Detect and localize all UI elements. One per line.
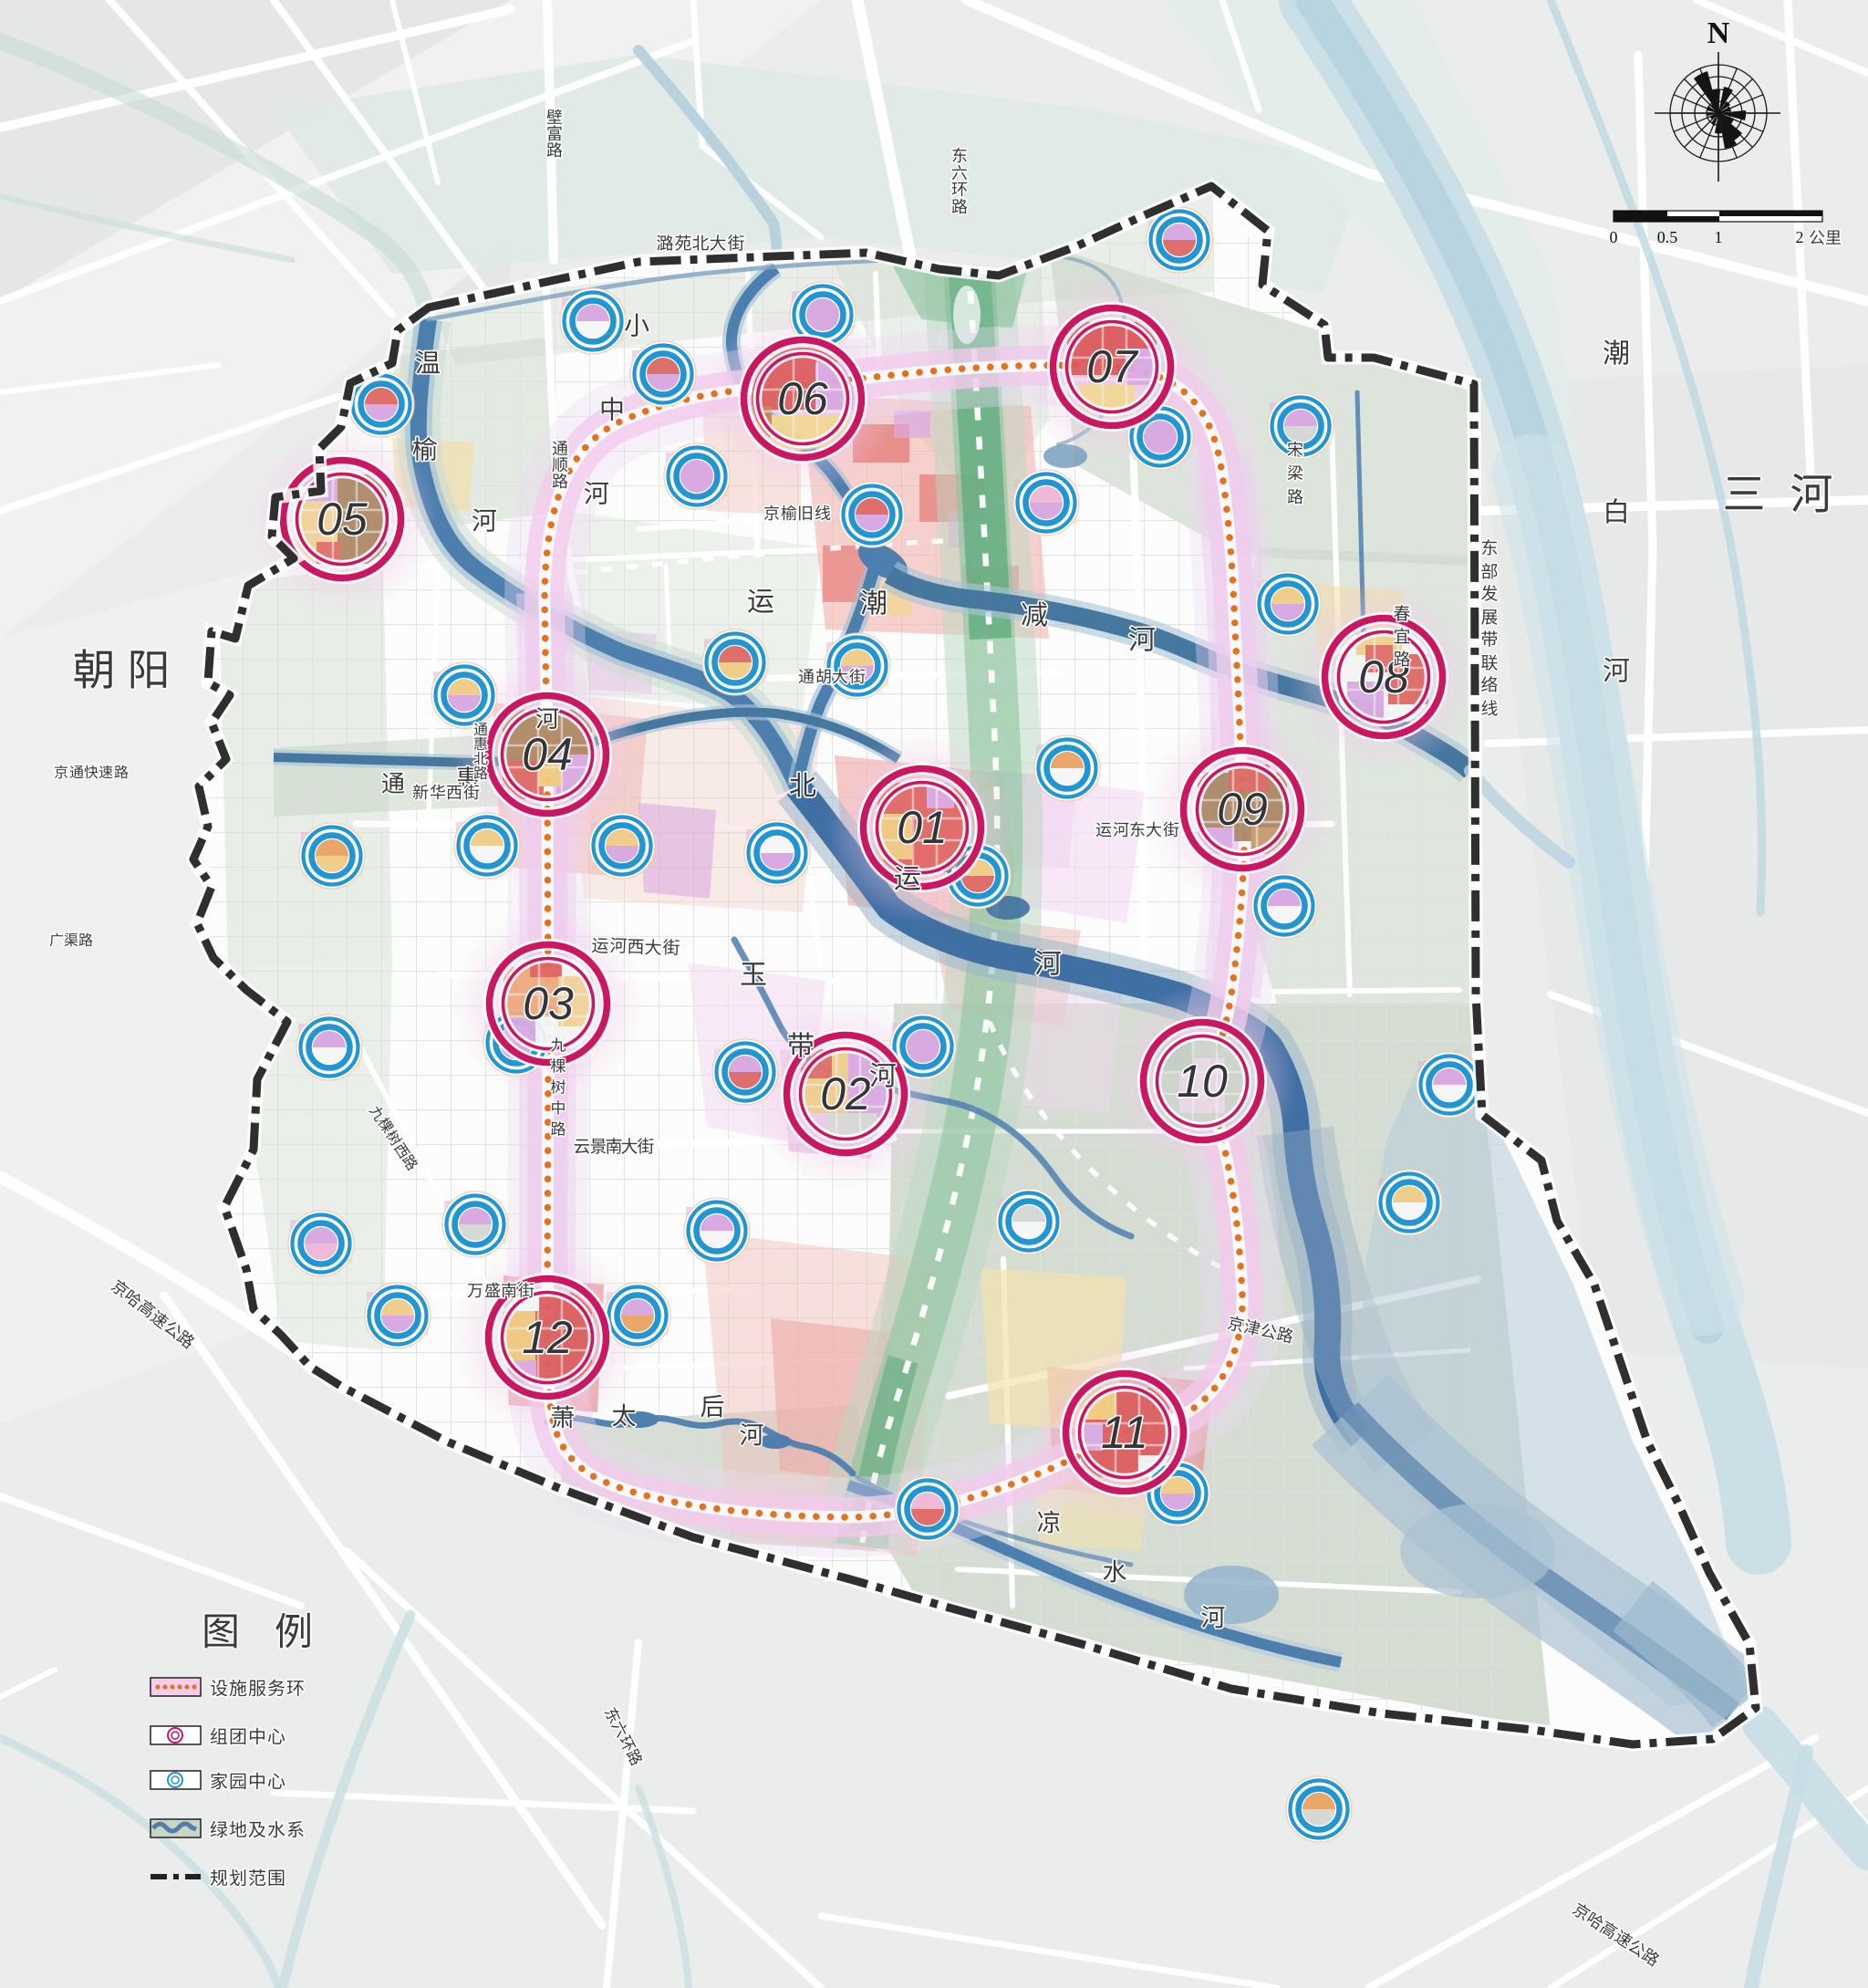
- svg-text:1: 1: [1715, 228, 1723, 246]
- svg-text:04: 04: [522, 729, 573, 780]
- svg-text:12: 12: [522, 1312, 573, 1363]
- svg-text:0.5: 0.5: [1657, 228, 1678, 246]
- svg-text:01: 01: [897, 802, 948, 853]
- svg-text:07: 07: [1086, 341, 1139, 392]
- svg-text:N: N: [1707, 16, 1730, 50]
- svg-text:11: 11: [1101, 1407, 1148, 1458]
- svg-text:05: 05: [317, 494, 368, 545]
- svg-text:0: 0: [1610, 228, 1618, 246]
- svg-text:02: 02: [820, 1068, 871, 1119]
- svg-text:03: 03: [523, 978, 574, 1029]
- svg-text:10: 10: [1177, 1056, 1228, 1107]
- svg-text:06: 06: [777, 373, 828, 424]
- svg-text:09: 09: [1217, 784, 1268, 835]
- svg-text:2: 2: [1796, 228, 1804, 246]
